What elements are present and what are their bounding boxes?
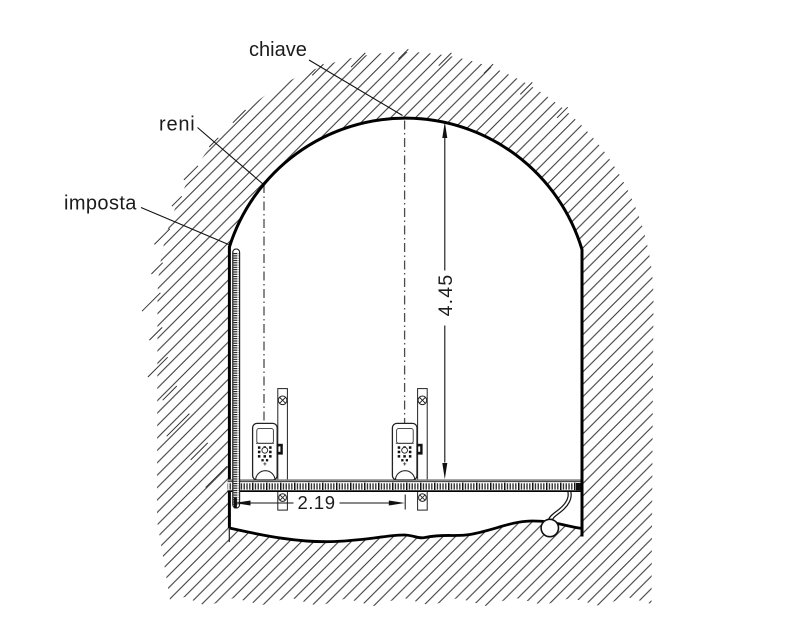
- svg-text:imposta: imposta: [64, 193, 137, 215]
- svg-text:reni: reni: [159, 114, 196, 136]
- svg-text:4.45: 4.45: [435, 274, 457, 317]
- svg-text:2.19: 2.19: [297, 492, 335, 513]
- svg-text:chiave: chiave: [249, 39, 307, 61]
